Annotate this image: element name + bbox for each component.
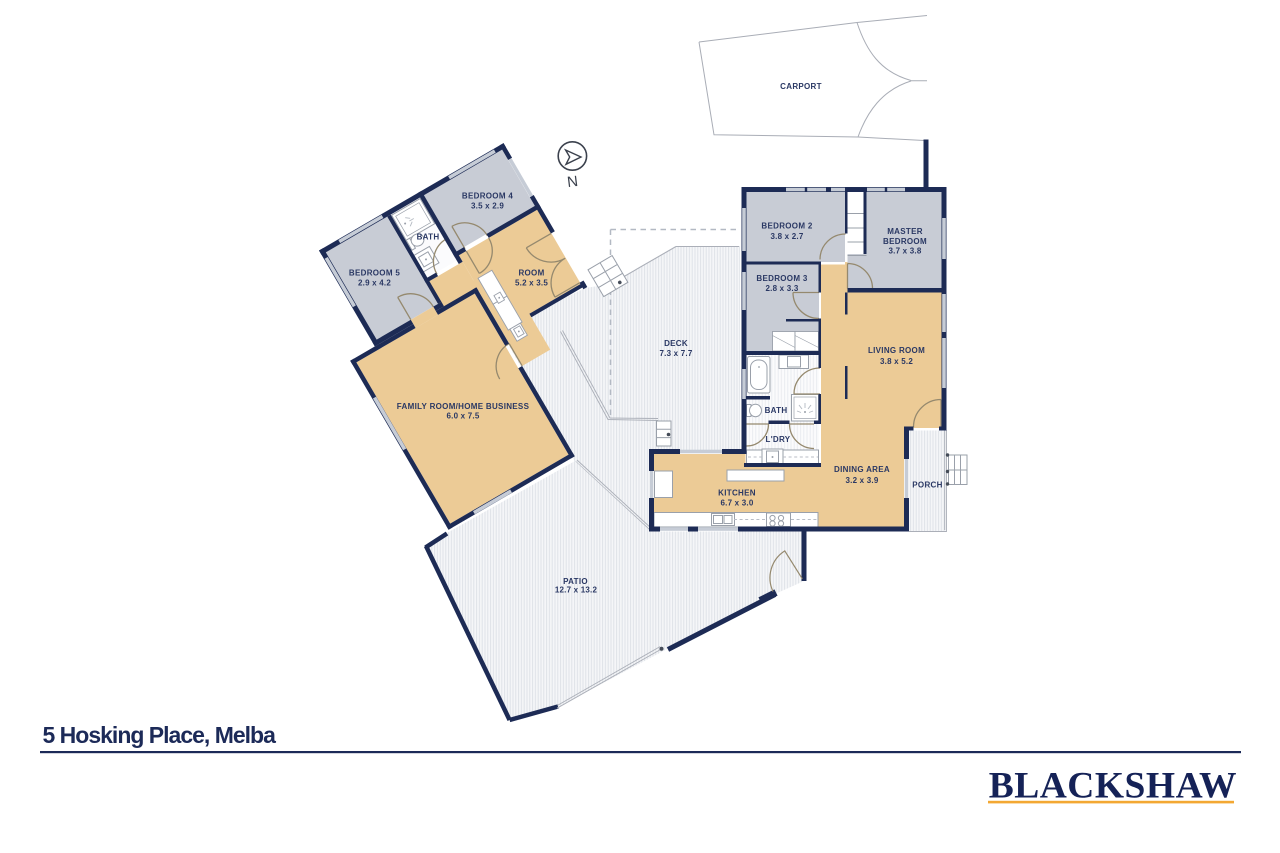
svg-text:BATH: BATH xyxy=(765,406,788,415)
svg-text:3.8 x 5.2: 3.8 x 5.2 xyxy=(880,357,913,366)
svg-text:5.2 x 3.5: 5.2 x 3.5 xyxy=(515,279,548,288)
svg-text:KITCHEN: KITCHEN xyxy=(718,489,756,498)
svg-text:PORCH: PORCH xyxy=(912,481,942,490)
svg-text:ROOM: ROOM xyxy=(518,269,544,278)
svg-text:DECK: DECK xyxy=(664,339,688,348)
svg-text:7.3 x 7.7: 7.3 x 7.7 xyxy=(660,349,693,358)
svg-text:BEDROOM 3: BEDROOM 3 xyxy=(756,274,807,283)
svg-text:LIVING ROOM: LIVING ROOM xyxy=(868,346,925,355)
svg-text:12.7 x 13.2: 12.7 x 13.2 xyxy=(555,586,598,595)
svg-text:BEDROOM 2: BEDROOM 2 xyxy=(761,222,812,231)
svg-text:BEDROOM 5: BEDROOM 5 xyxy=(349,269,400,278)
svg-text:3.2 x 3.9: 3.2 x 3.9 xyxy=(846,476,879,485)
svg-text:MASTER: MASTER xyxy=(887,227,923,236)
svg-text:3.7 x 3.8: 3.7 x 3.8 xyxy=(889,247,922,256)
svg-text:6.0 x 7.5: 6.0 x 7.5 xyxy=(447,412,480,421)
svg-text:3.5 x 2.9: 3.5 x 2.9 xyxy=(471,202,504,211)
svg-text:6.7 x 3.0: 6.7 x 3.0 xyxy=(721,499,754,508)
svg-text:FAMILY ROOM/HOME BUSINESS: FAMILY ROOM/HOME BUSINESS xyxy=(397,402,530,411)
svg-text:BATH: BATH xyxy=(417,233,440,242)
svg-text:5 Hosking Place, Melba: 5 Hosking Place, Melba xyxy=(43,722,277,748)
svg-text:CARPORT: CARPORT xyxy=(780,82,822,91)
svg-text:2.9 x 4.2: 2.9 x 4.2 xyxy=(358,279,391,288)
svg-text:L'DRY: L'DRY xyxy=(766,435,791,444)
svg-text:BEDROOM 4: BEDROOM 4 xyxy=(462,192,513,201)
svg-text:DINING AREA: DINING AREA xyxy=(834,465,890,474)
svg-text:BLACKSHAW: BLACKSHAW xyxy=(989,766,1237,807)
svg-text:BEDROOM: BEDROOM xyxy=(883,237,927,246)
svg-text:2.8 x 3.3: 2.8 x 3.3 xyxy=(766,284,799,293)
svg-text:3.8 x 2.7: 3.8 x 2.7 xyxy=(771,232,804,241)
svg-text:N: N xyxy=(566,173,579,191)
